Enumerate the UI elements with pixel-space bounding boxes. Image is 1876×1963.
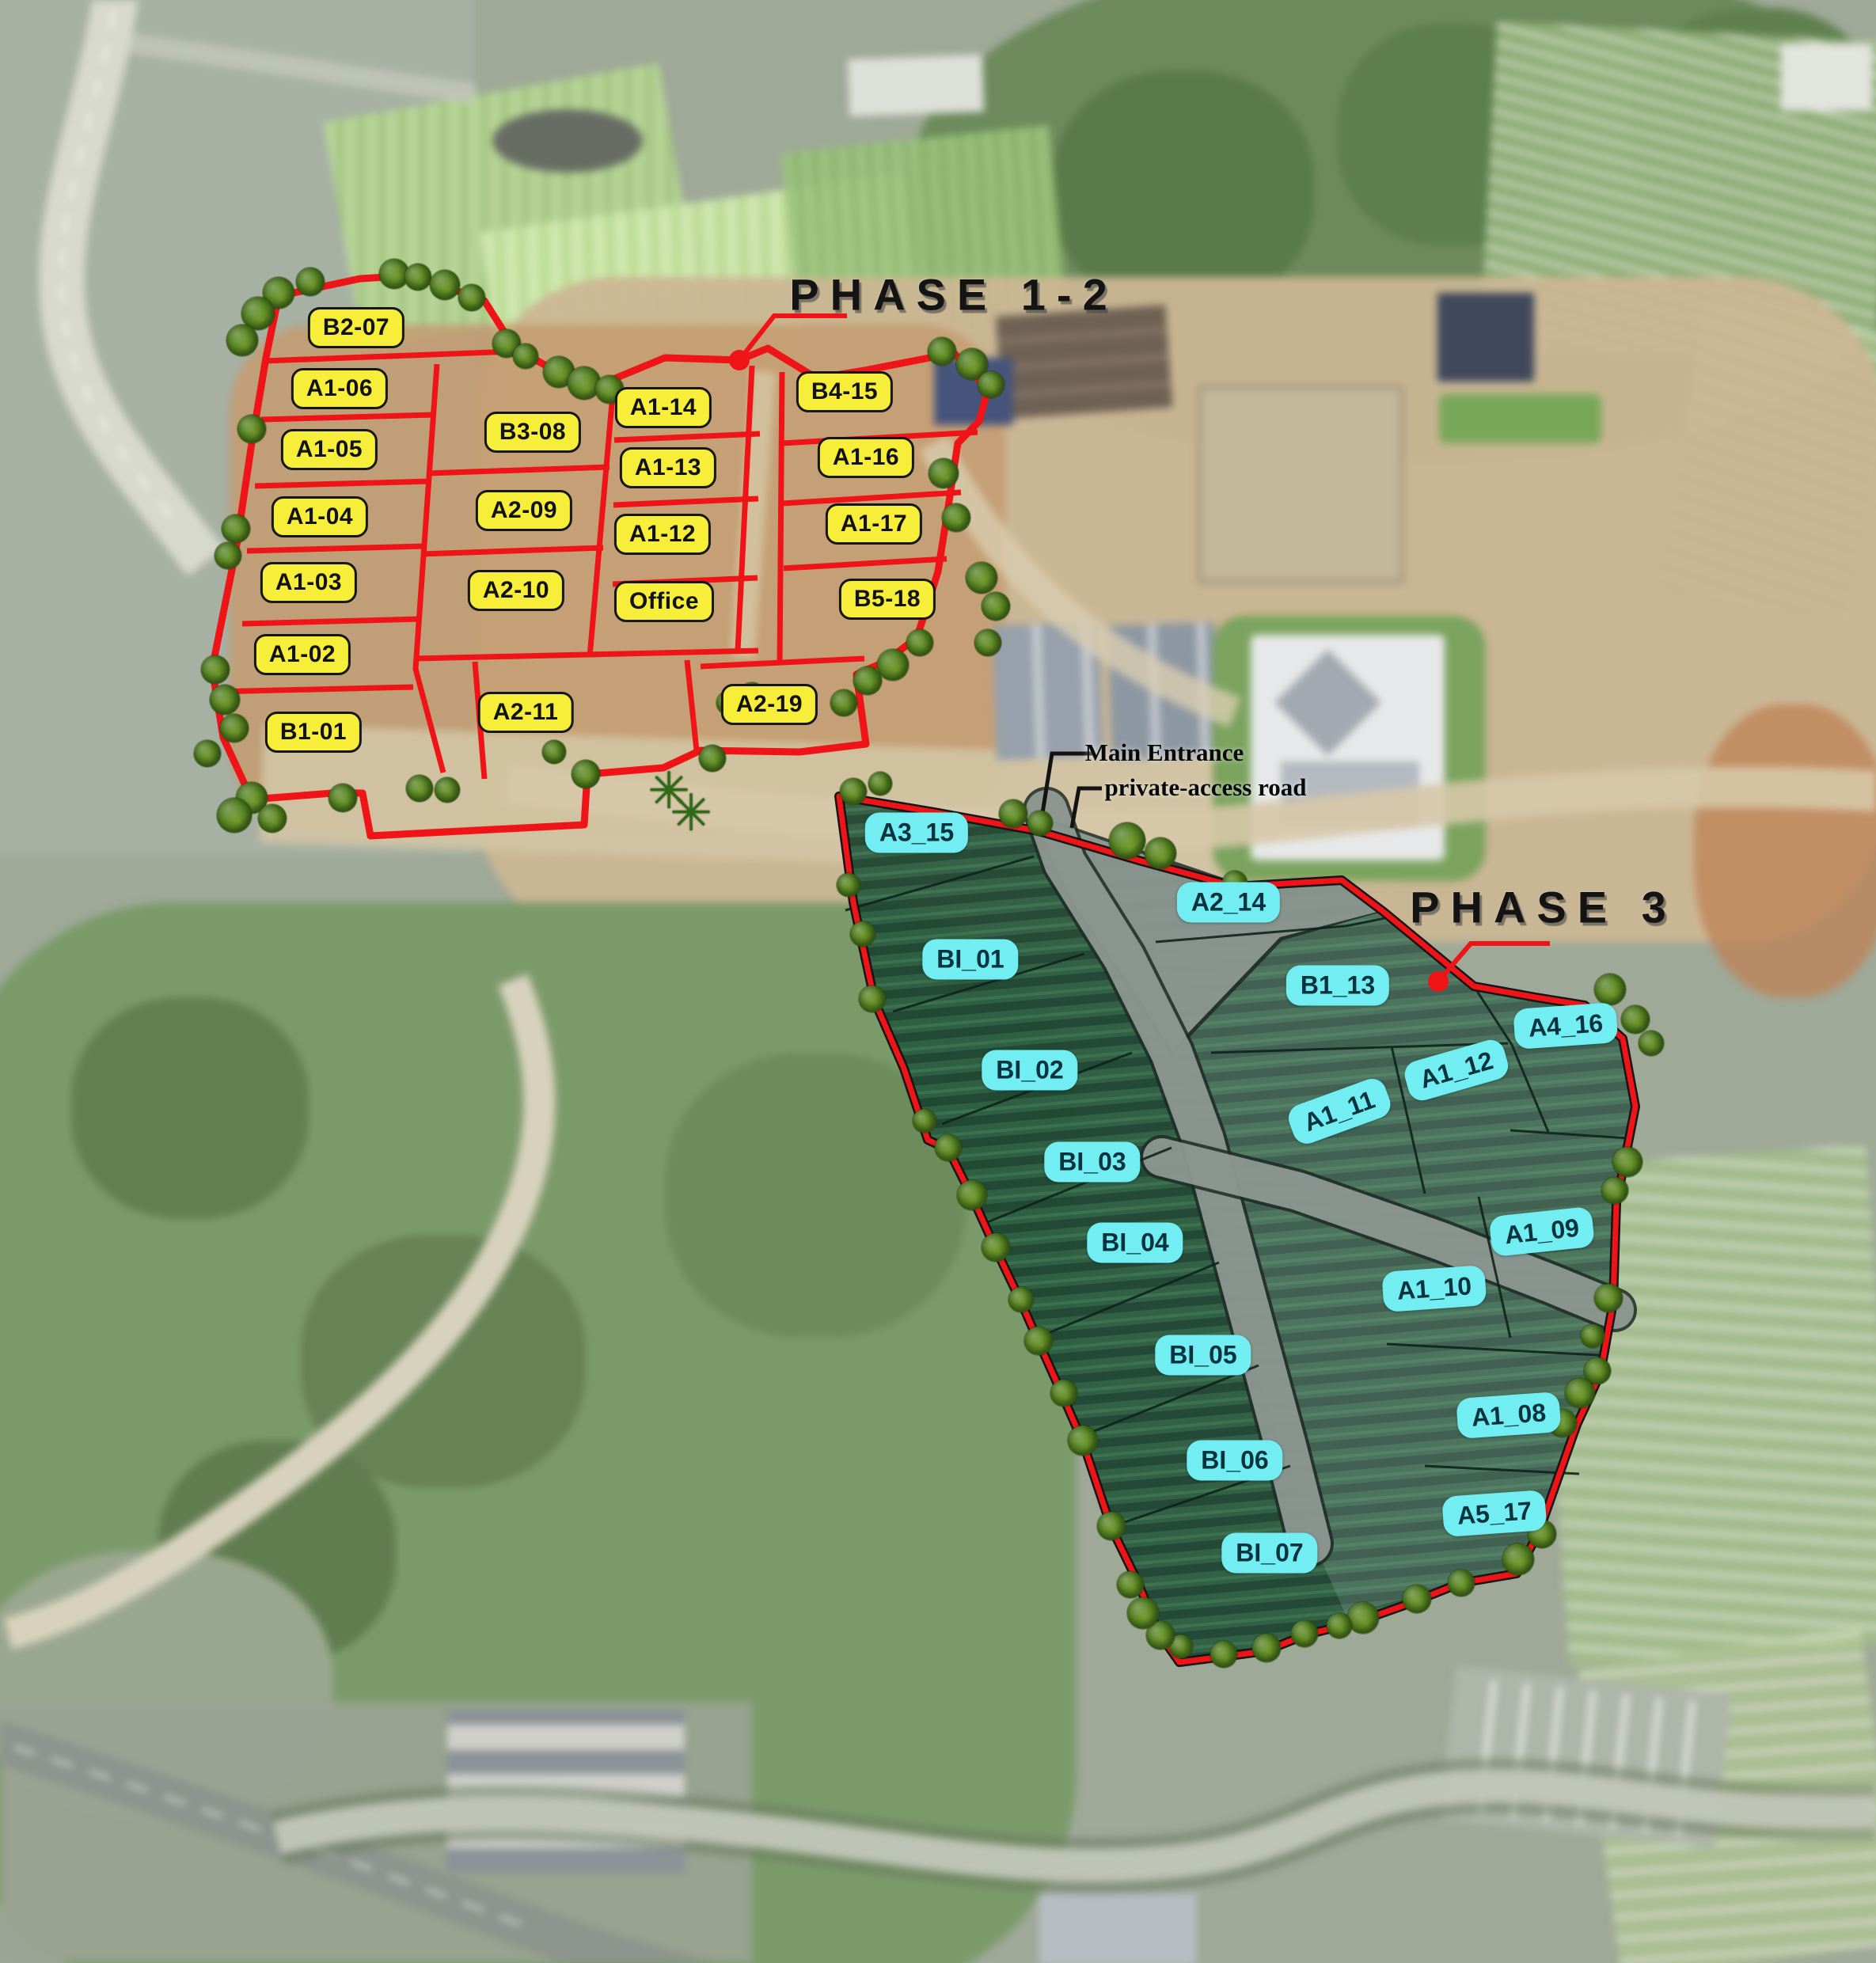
tree-icon xyxy=(435,777,460,803)
tree-icon xyxy=(215,542,241,569)
tree-icon xyxy=(1448,1570,1475,1597)
private-access-road-leader xyxy=(1072,788,1102,828)
tree-icon xyxy=(853,666,882,695)
tree-icon xyxy=(513,344,538,369)
plot-label-Office: Office xyxy=(614,581,714,622)
tree-icon xyxy=(830,689,857,716)
tree-icon xyxy=(1145,837,1176,869)
phase-3-title: PHASE 3 xyxy=(1410,882,1677,933)
tree-icon xyxy=(328,784,357,812)
tree-icon xyxy=(210,685,240,715)
tree-icon xyxy=(296,268,325,296)
plot-label-A2-11: A2-11 xyxy=(478,692,574,733)
tree-icon xyxy=(572,760,600,788)
plot-label-A2-10: A2-10 xyxy=(468,570,564,611)
tree-icon xyxy=(220,714,249,742)
palm-tree-icon: ✳ xyxy=(670,788,712,839)
tree-icon xyxy=(217,798,252,833)
site-plan-map: ✳✳ B2-07A1-06A1-05A1-04A1-03A1-02B1-01B3… xyxy=(0,0,1876,1963)
tree-icon xyxy=(982,1233,1010,1262)
plot-label-B3-08: B3-08 xyxy=(484,412,581,453)
tree-icon xyxy=(877,649,909,681)
plot-label-A2_14: A2_14 xyxy=(1177,883,1280,923)
tree-icon xyxy=(935,1134,962,1161)
tree-icon xyxy=(837,873,860,897)
tree-icon xyxy=(1050,1380,1077,1407)
plot-label-A3_15: A3_15 xyxy=(865,813,968,853)
plot-label-A1-02: A1-02 xyxy=(254,634,351,675)
plot-label-A1-14: A1-14 xyxy=(615,387,712,428)
plot-label-A1-12: A1-12 xyxy=(614,514,711,555)
tree-icon xyxy=(1601,1177,1628,1204)
tree-icon xyxy=(957,1180,987,1210)
plot-label-A1_08: A1_08 xyxy=(1456,1392,1562,1439)
plot-label-BI_02: BI_02 xyxy=(982,1050,1077,1091)
leader-dot-icon xyxy=(729,350,750,370)
tree-icon xyxy=(978,371,1004,398)
tree-icon xyxy=(1127,1597,1159,1629)
plot-label-A1-05: A1-05 xyxy=(281,429,378,470)
tree-icon xyxy=(226,325,258,356)
tree-icon xyxy=(1565,1378,1595,1408)
tree-icon xyxy=(1008,1287,1034,1312)
tree-icon xyxy=(1252,1634,1281,1662)
plot-label-B5-18: B5-18 xyxy=(839,579,936,620)
tree-icon xyxy=(699,745,726,772)
tree-icon xyxy=(942,503,970,532)
plot-label-A1-06: A1-06 xyxy=(291,368,388,409)
plot-label-B2-07: B2-07 xyxy=(308,307,404,348)
phase-1-2-title: PHASE 1-2 xyxy=(789,269,1118,321)
tree-icon xyxy=(1403,1585,1431,1613)
tree-icon xyxy=(430,270,460,300)
leader-dot-icon xyxy=(1428,971,1449,992)
tree-icon xyxy=(966,562,997,594)
plot-label-BI_05: BI_05 xyxy=(1155,1335,1251,1376)
plot-label-A5_17: A5_17 xyxy=(1441,1490,1548,1537)
tree-icon xyxy=(406,775,433,802)
tree-icon xyxy=(929,458,959,488)
tree-icon xyxy=(1027,811,1053,836)
plot-label-A1-17: A1-17 xyxy=(826,503,922,545)
tree-icon xyxy=(840,778,867,805)
plot-label-B1_13: B1_13 xyxy=(1286,966,1389,1006)
tree-icon xyxy=(237,415,266,443)
tree-icon xyxy=(1612,1147,1642,1177)
tree-icon xyxy=(1594,1284,1623,1312)
tree-icon xyxy=(222,514,250,543)
tree-icon xyxy=(1347,1602,1379,1634)
tree-icon xyxy=(1327,1613,1352,1638)
tree-icon xyxy=(1594,974,1626,1005)
tree-icon xyxy=(906,629,933,656)
tree-icon xyxy=(194,740,221,767)
tree-icon xyxy=(1210,1641,1237,1668)
plot-label-A1_10: A1_10 xyxy=(1381,1265,1487,1312)
tree-icon xyxy=(1097,1512,1126,1540)
tree-icon xyxy=(868,772,892,795)
plot-label-A1-13: A1-13 xyxy=(620,447,716,488)
tree-icon xyxy=(1024,1327,1053,1355)
plot-label-BI_01: BI_01 xyxy=(922,940,1018,980)
plot-label-A2-09: A2-09 xyxy=(476,490,572,531)
plot-label-A2-19: A2-19 xyxy=(721,684,818,725)
plot-label-BI_06: BI_06 xyxy=(1187,1441,1282,1481)
tree-icon xyxy=(201,655,230,684)
tree-icon xyxy=(458,284,485,311)
plot-label-A1-16: A1-16 xyxy=(818,437,914,478)
plot-label-BI_03: BI_03 xyxy=(1044,1142,1140,1183)
tree-icon xyxy=(999,799,1027,828)
tree-icon xyxy=(913,1109,936,1133)
plot-label-A1-03: A1-03 xyxy=(260,562,357,603)
plot-label-B4-15: B4-15 xyxy=(796,371,893,412)
tree-icon xyxy=(928,337,956,366)
tree-icon xyxy=(542,740,566,764)
plot-label-B1-01: B1-01 xyxy=(265,712,362,753)
tree-icon xyxy=(1621,1005,1650,1034)
tree-icon xyxy=(974,629,1001,656)
plot-label-A1-04: A1-04 xyxy=(272,496,368,537)
main-entrance-annotation: Main Entrance xyxy=(1085,738,1244,767)
plot-label-BI_04: BI_04 xyxy=(1087,1223,1183,1263)
tree-icon xyxy=(1581,1324,1604,1348)
tree-icon xyxy=(1109,822,1145,859)
tree-icon xyxy=(1291,1620,1318,1647)
private-access-road-annotation: private-access road xyxy=(1104,773,1306,802)
tree-icon xyxy=(258,804,287,833)
tree-icon xyxy=(1502,1543,1534,1575)
tree-icon xyxy=(404,264,431,290)
tree-icon xyxy=(850,921,875,947)
plot-label-BI_07: BI_07 xyxy=(1221,1533,1317,1574)
tree-icon xyxy=(1068,1426,1098,1456)
tree-icon xyxy=(1117,1571,1144,1598)
tree-icon xyxy=(982,592,1010,621)
tree-icon xyxy=(1639,1031,1664,1056)
plot-label-A4_16: A4_16 xyxy=(1513,1002,1619,1050)
tree-icon xyxy=(859,985,886,1012)
